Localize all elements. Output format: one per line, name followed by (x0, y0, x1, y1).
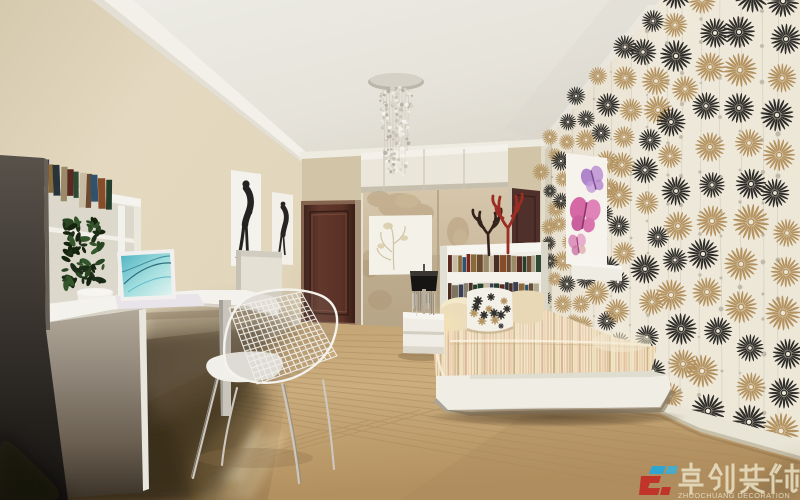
svg-text:ZHUOCHUANG DECORATION: ZHUOCHUANG DECORATION (678, 491, 790, 500)
